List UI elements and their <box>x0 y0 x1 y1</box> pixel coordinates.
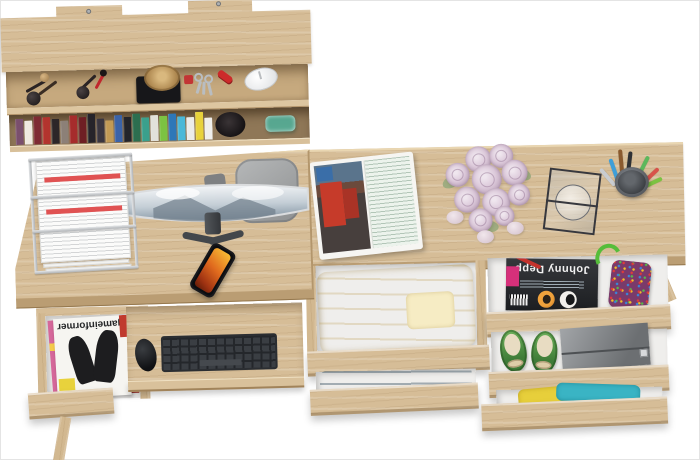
clothes-fold <box>406 291 456 330</box>
glass-frame <box>543 168 602 236</box>
book-spine <box>42 117 51 144</box>
white-mouse-icon <box>242 64 281 94</box>
clutch-flap <box>562 347 650 355</box>
open-magazine <box>309 151 423 260</box>
magazine-photo-page <box>314 161 371 254</box>
books-row <box>15 108 221 145</box>
book-spine <box>60 120 69 143</box>
red-key-fob-icon <box>184 75 193 84</box>
shelf-top-plank <box>0 10 311 73</box>
magazine-title: Johnny Depp <box>506 262 598 275</box>
pen-cup <box>610 141 657 198</box>
book-spine <box>141 117 150 141</box>
book-spine <box>24 121 33 145</box>
teal-glass-icon <box>265 115 295 132</box>
beaded-bag <box>608 259 653 311</box>
book-spine <box>33 116 42 144</box>
rose-bloom <box>501 159 528 186</box>
drawer-front-panel <box>28 388 115 420</box>
wall-shelf <box>0 0 314 154</box>
spacebar-key <box>199 359 241 366</box>
book-spine <box>195 112 204 140</box>
beanie-icon <box>215 112 246 138</box>
game-magazine: gameinformer <box>53 315 132 399</box>
yellow-folded-clothes <box>316 264 476 355</box>
book-spine <box>186 117 195 140</box>
mesh-cup-icon <box>615 167 650 198</box>
book-spine <box>132 113 141 141</box>
document-tray <box>28 153 139 275</box>
drawer-side-wall <box>475 260 487 348</box>
magazine-title: gameinformer <box>53 317 128 332</box>
screw-icon <box>86 9 91 14</box>
gray-clutch <box>560 323 651 371</box>
lipstick-and-brush-icon <box>72 71 115 104</box>
book-spine <box>168 113 177 140</box>
book-spine <box>69 115 78 143</box>
book-spine <box>105 120 114 142</box>
book-spine <box>96 118 105 142</box>
rose-bouquet <box>439 143 541 239</box>
computer-desk <box>3 141 320 323</box>
book-spine <box>204 117 213 139</box>
cover-figure <box>92 329 120 383</box>
document-red-bar <box>44 173 120 182</box>
book-spine <box>87 114 96 143</box>
makeup-brushes-icon <box>24 75 65 106</box>
rose-bloom <box>508 183 530 205</box>
rose-bloom <box>445 163 469 187</box>
celebrity-magazine: Johnny Depp <box>506 258 599 311</box>
owl-eye-graphic <box>560 291 577 308</box>
monitor-stand <box>204 212 221 234</box>
desk-leg <box>53 416 71 460</box>
furniture-render: Johnny Depp <box>0 0 700 460</box>
document-stack <box>35 156 131 263</box>
dressing-table: Johnny Depp <box>299 134 697 442</box>
magazine-badge <box>506 266 519 286</box>
book-spine <box>123 117 132 142</box>
clutch-clasp <box>640 349 649 358</box>
magazine-subtext <box>520 280 584 289</box>
book-spine <box>159 116 168 141</box>
cover-badge <box>59 378 76 391</box>
book-spine <box>150 115 159 141</box>
book-spine <box>177 116 186 140</box>
book-spine <box>114 115 123 142</box>
book-spine <box>15 119 24 145</box>
book-spine <box>78 117 87 143</box>
document-red-bar <box>46 205 122 214</box>
computer-desk-lower: gameinformer <box>16 296 320 460</box>
magazine-text-page <box>363 156 418 248</box>
book-spine <box>51 119 60 144</box>
keyboard <box>161 333 278 372</box>
owl-eye-graphic <box>538 291 555 308</box>
barcode-icon <box>510 294 528 305</box>
screw-icon <box>216 1 221 6</box>
